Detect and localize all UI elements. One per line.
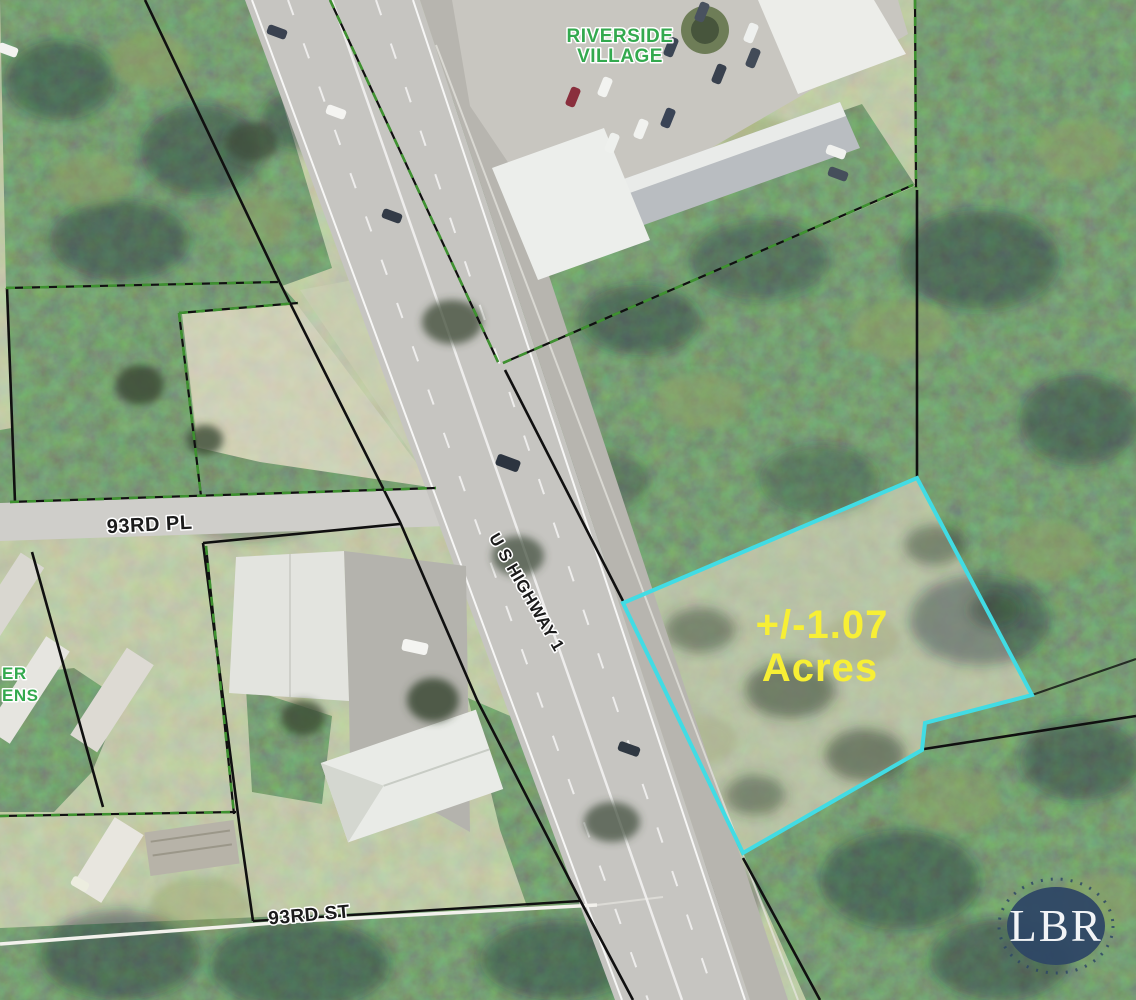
- tree-highlight: [225, 195, 295, 245]
- parcel-bush: [725, 775, 785, 815]
- riverside-village-label-line2: VILLAGE: [577, 46, 663, 67]
- parcel-bush: [905, 525, 965, 565]
- partial-street-label-line1: ER: [2, 664, 27, 683]
- aerial-map: RIVERSIDE VILLAGE 93RD PL U S HIGHWAY 1 …: [0, 0, 1136, 1000]
- tree-single: [116, 365, 164, 405]
- lbr-logo-text: LBR: [1009, 901, 1103, 951]
- acreage-label-line2: Acres: [762, 646, 878, 690]
- tree-shadow: [900, 210, 1060, 310]
- acreage-label-line1: +/-1.07: [756, 603, 889, 647]
- partial-street-label-line2: ENS: [2, 686, 38, 705]
- tree-shadow: [760, 445, 880, 515]
- tree-highlight: [900, 768, 1000, 832]
- tree-overhang: [226, 122, 278, 162]
- street-label-93rd-pl: 93RD PL: [106, 512, 193, 538]
- tree-shadow: [1020, 375, 1136, 465]
- tree-highlight: [850, 300, 950, 360]
- tree-highlight: [50, 154, 130, 206]
- tree-shadow: [50, 200, 190, 280]
- parcel-bush: [825, 729, 905, 781]
- tree-shadow: [820, 830, 980, 930]
- tree-shadow: [5, 40, 115, 120]
- tree-highlight: [1035, 120, 1125, 180]
- tree-highlight: [110, 32, 190, 88]
- parcel-bush: [665, 608, 735, 652]
- parking-island-tree-core: [691, 16, 719, 44]
- tree-highlight: [1005, 520, 1095, 580]
- riverside-village-label-line1: RIVERSIDE: [567, 26, 674, 47]
- tree-single: [281, 700, 325, 736]
- tree-highlight: [655, 372, 745, 428]
- tree-overhang: [584, 802, 640, 842]
- tree-single: [407, 678, 459, 722]
- tree-shadow: [690, 220, 830, 300]
- tree-shadow: [580, 285, 700, 355]
- aerial-map-canvas: RIVERSIDE VILLAGE 93RD PL U S HIGHWAY 1 …: [0, 0, 1136, 1000]
